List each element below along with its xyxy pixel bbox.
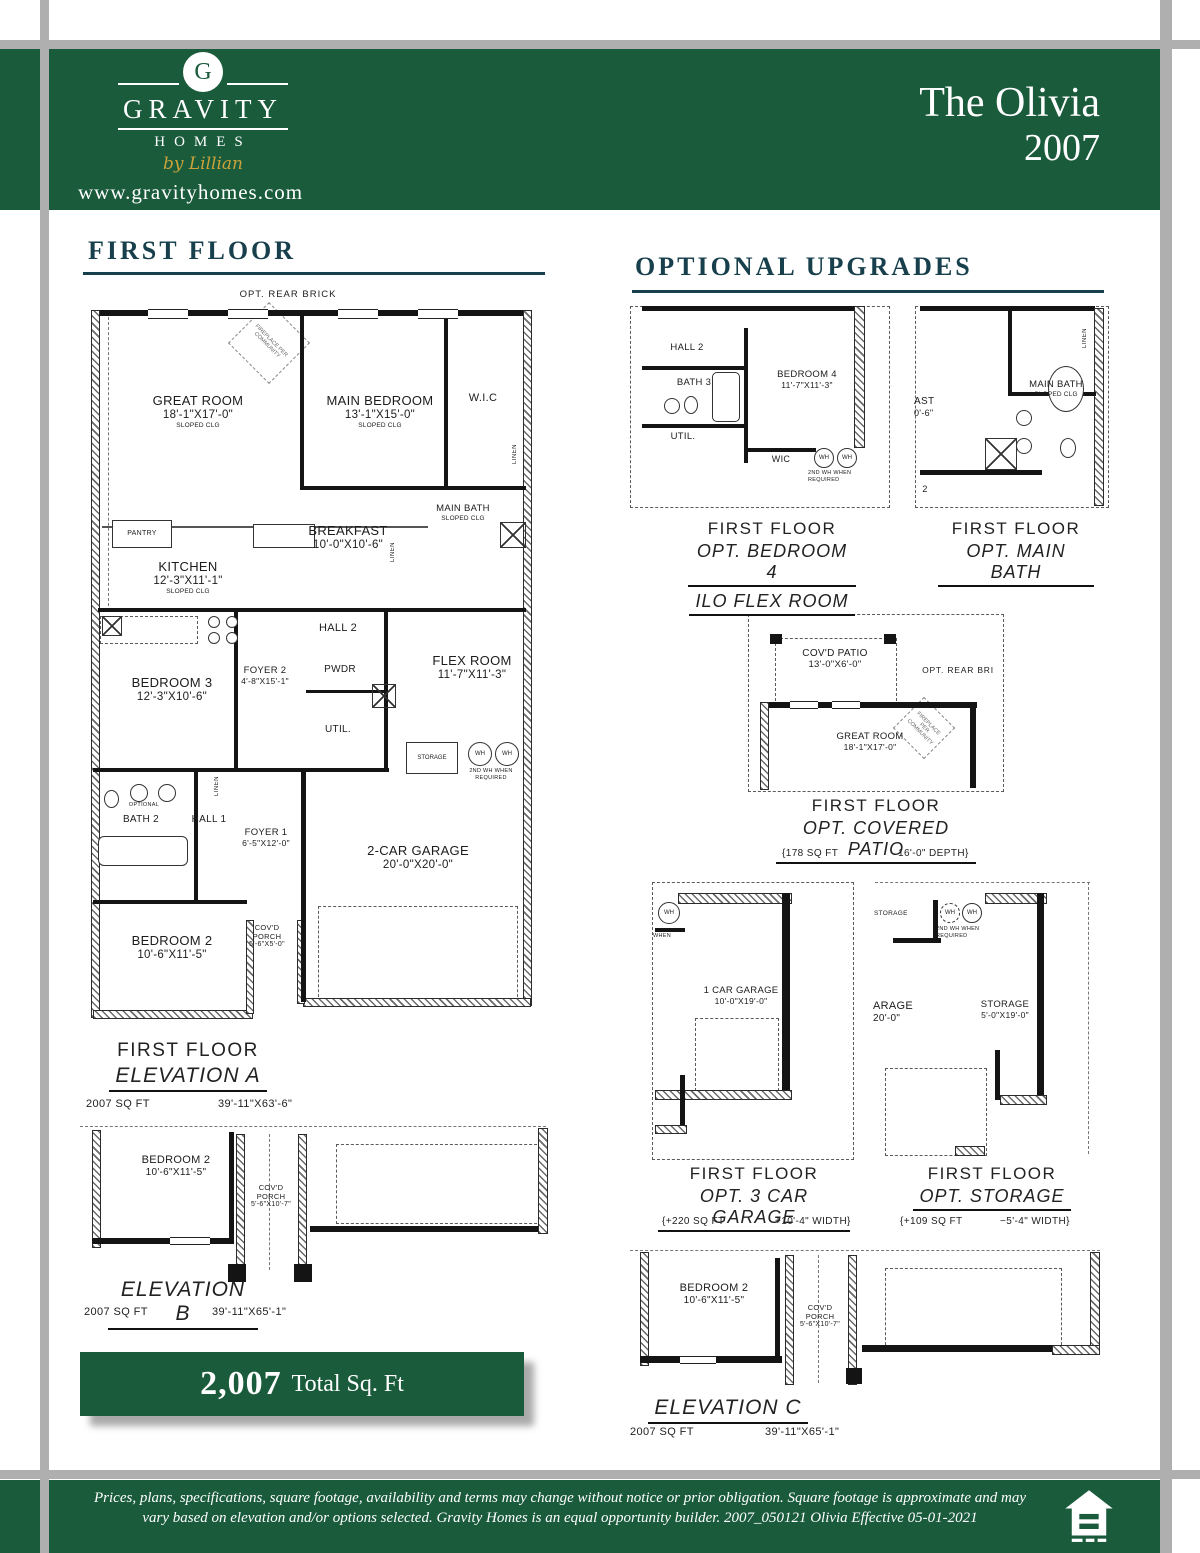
water-heater: WH bbox=[495, 742, 519, 766]
storage-box: STORAGE bbox=[406, 742, 458, 774]
sink bbox=[1016, 410, 1032, 426]
wall bbox=[303, 998, 531, 1007]
wall bbox=[98, 608, 526, 612]
plan-name: The Olivia bbox=[919, 80, 1100, 126]
room-label-pwdr: PWDR bbox=[312, 664, 368, 676]
room-label-foyer2: FOYER 2 4'-8"X15'-1" bbox=[230, 666, 300, 687]
wall bbox=[655, 928, 685, 932]
breakfast-cropped-label: AST 0'-6" bbox=[914, 396, 950, 418]
opt-bedroom4-caption: FIRST FLOOR OPT. BEDROOM 4 ILO FLEX ROOM bbox=[688, 519, 856, 616]
room-dims: 4'-8"X15'-1" bbox=[230, 677, 300, 687]
linen-label: LINEN bbox=[214, 776, 220, 796]
caption-line: OPT. BEDROOM 4 bbox=[688, 539, 856, 587]
water-heater: WH bbox=[468, 742, 492, 766]
room-dims: 11'-7"X11'-3" bbox=[760, 381, 854, 391]
room-name: KITCHEN bbox=[128, 560, 248, 575]
room-label-bath3: BATH 3 bbox=[664, 378, 724, 389]
dashed-line bbox=[1088, 882, 1089, 1154]
room-dims: 20'-0"X20'-0" bbox=[340, 859, 496, 872]
caption-line: FIRST FLOOR bbox=[88, 1040, 288, 1062]
storage-sqft: {+109 SQ FT bbox=[900, 1216, 963, 1227]
wall bbox=[642, 424, 748, 428]
water-heater: WH bbox=[837, 448, 857, 468]
elevation-b-sqft: 2007 SQ FT bbox=[84, 1306, 148, 1318]
wall bbox=[1000, 1095, 1047, 1105]
room-label-bedroom2: BEDROOM 2 10'-6"X11'-5" bbox=[116, 1154, 236, 1178]
wall bbox=[92, 1130, 101, 1248]
caption-line: FIRST FLOOR bbox=[776, 796, 976, 816]
window bbox=[338, 309, 378, 319]
wall bbox=[640, 1252, 649, 1366]
shelf-x bbox=[372, 684, 396, 708]
room-dims: 5'-6"X10'-7" bbox=[230, 1201, 312, 1209]
water-heater: WH bbox=[814, 448, 834, 468]
footer-disclaimer-line1: Prices, plans, specifications, square fo… bbox=[60, 1490, 1060, 1507]
logo-monogram-circle: G bbox=[183, 52, 223, 92]
wall bbox=[1094, 308, 1104, 506]
room-name: PORCH bbox=[230, 1193, 312, 1202]
brochure-page: G GRAVITY HOMES by Lillian www.gravityho… bbox=[0, 0, 1200, 1553]
room-label-porch: COV'D PORCH 5'-6"X10'-7" bbox=[788, 1304, 852, 1329]
room-label-main-bath: MAIN BATH SLOPED CLG bbox=[1026, 380, 1086, 398]
window bbox=[790, 701, 818, 709]
wall bbox=[678, 893, 792, 904]
total-sqft-value: 2,007 bbox=[200, 1365, 282, 1403]
caption-line: FIRST FLOOR bbox=[658, 1164, 850, 1184]
room-name: FLEX ROOM bbox=[416, 654, 528, 669]
room-name: BEDROOM 2 bbox=[116, 1154, 236, 1167]
sink bbox=[664, 398, 680, 414]
elevation-c-sqft: 2007 SQ FT bbox=[630, 1426, 694, 1438]
elevation-c-caption: ELEVATION C bbox=[648, 1394, 808, 1424]
first-floor-rule bbox=[83, 272, 545, 275]
linen-label: LINEN bbox=[390, 542, 396, 562]
wall bbox=[194, 770, 198, 902]
wall bbox=[301, 770, 306, 1002]
wh-when-note: WHEN bbox=[653, 933, 685, 940]
sink bbox=[158, 784, 176, 802]
wall bbox=[746, 448, 816, 452]
room-label-great-room: GREAT ROOM 18'-1"X17'-0" bbox=[800, 732, 940, 753]
total-sqft-label: Total Sq. Ft bbox=[292, 1371, 404, 1398]
room-label-main-bedroom: MAIN BEDROOM 13'-1"X15'-0" SLOPED CLG bbox=[310, 394, 450, 430]
room-name: AST bbox=[914, 396, 950, 408]
footer-disclaimer-line2: vary based on elevation and/or options s… bbox=[60, 1510, 1060, 1527]
room-note: SLOPED CLG bbox=[1026, 391, 1086, 398]
room-dims: 20'-0" bbox=[873, 1013, 931, 1025]
optional-upgrades-rule bbox=[632, 290, 1104, 293]
porch-post bbox=[846, 1368, 862, 1384]
optional-note: OPTIONAL bbox=[120, 802, 168, 809]
room-label-porch: COV'D PORCH 5'-6"X10'-7" bbox=[230, 1184, 312, 1209]
caption-line: OPT. MAIN BATH bbox=[938, 539, 1094, 587]
patio-post bbox=[770, 634, 782, 644]
stove-burner bbox=[226, 632, 238, 644]
room-label-great-room: GREAT ROOM 18'-1"X17'-0" SLOPED CLG bbox=[113, 394, 283, 430]
caption-line: ELEVATION A bbox=[109, 1062, 266, 1092]
room-label-hall2: HALL 2 bbox=[654, 343, 720, 354]
stove-burner bbox=[208, 632, 220, 644]
garage3-width: +10'-4" WIDTH} bbox=[775, 1216, 851, 1227]
elevation-a-caption: FIRST FLOOR ELEVATION A bbox=[88, 1040, 288, 1092]
toilet bbox=[684, 396, 698, 414]
tub bbox=[98, 836, 188, 866]
room-name: PORCH bbox=[236, 933, 298, 942]
garage-door-dashed bbox=[885, 1268, 1062, 1350]
gravity-homes-logo: G GRAVITY HOMES by Lillian bbox=[118, 52, 288, 174]
opt-storage-caption: FIRST FLOOR OPT. STORAGE bbox=[898, 1164, 1086, 1211]
caption-line: FIRST FLOOR bbox=[938, 519, 1094, 539]
wall bbox=[300, 310, 304, 488]
wall bbox=[995, 1050, 1000, 1100]
wall bbox=[760, 702, 769, 790]
garage-door-dashed bbox=[318, 906, 518, 1002]
logo-rule-right bbox=[227, 83, 288, 85]
room-dims: 10'-6"X11'-5" bbox=[116, 1167, 236, 1179]
logo-rule-left bbox=[118, 83, 179, 85]
room-dims: 12'-3"X11'-1" bbox=[128, 575, 248, 588]
room-dims: 5'-6"X5'-0" bbox=[236, 941, 298, 949]
room-dims: 5'-6"X10'-7" bbox=[788, 1321, 852, 1329]
room-note: SLOPED CLG bbox=[310, 422, 450, 429]
sink bbox=[1016, 438, 1032, 454]
room-label-bedroom3: BEDROOM 3 12'-3"X10'-6" bbox=[106, 676, 238, 704]
sink bbox=[130, 784, 148, 802]
room-dims: 10'-6"X11'-5" bbox=[655, 1295, 773, 1307]
garage-door-dashed bbox=[695, 1018, 779, 1096]
logo-homes: HOMES bbox=[118, 134, 288, 151]
opt-rear-brick-label: OPT. REAR BRICK bbox=[208, 290, 368, 301]
shelf-x bbox=[102, 616, 122, 636]
shower-x bbox=[985, 438, 1017, 470]
room-name: MAIN BATH bbox=[430, 504, 496, 515]
wall bbox=[920, 470, 1042, 475]
wh-note: 2ND WH WHEN REQUIRED bbox=[460, 768, 522, 781]
elevation-a-sqft: 2007 SQ FT bbox=[86, 1098, 150, 1110]
dashed-outline bbox=[885, 1068, 987, 1156]
elevation-b-dims: 39'-11"X65'-1" bbox=[212, 1306, 286, 1318]
optional-upgrades-heading: OPTIONAL UPGRADES bbox=[635, 252, 973, 282]
room-dims: 13'-1"X15'-0" bbox=[310, 409, 450, 422]
patio-depth: 16'-0" DEPTH} bbox=[898, 848, 969, 859]
room-name: PORCH bbox=[788, 1313, 852, 1322]
room-dims: 0'-6" bbox=[914, 408, 950, 418]
website-link[interactable]: www.gravityhomes.com bbox=[78, 180, 303, 205]
elevation-c-dims: 39'-11"X65'-1" bbox=[765, 1426, 839, 1438]
wall bbox=[680, 1075, 685, 1130]
caption-line: ELEVATION B bbox=[108, 1276, 258, 1330]
linen-label: LINEN bbox=[1082, 328, 1088, 348]
room-label-hall1: HALL 1 bbox=[178, 814, 240, 826]
window bbox=[170, 1237, 210, 1245]
room-label-porch: COV'D PORCH 5'-6"X5'-0" bbox=[236, 924, 298, 949]
room-label-bedroom2: BEDROOM 2 10'-6"X11'-5" bbox=[655, 1282, 773, 1306]
wall bbox=[92, 1238, 234, 1244]
elevation-a-dims: 39'-11"X63'-6" bbox=[218, 1098, 292, 1110]
wall bbox=[642, 306, 854, 311]
wall bbox=[642, 366, 746, 370]
room-label-util: UTIL. bbox=[656, 432, 710, 443]
hall-fragment: 2 bbox=[918, 484, 932, 494]
logo-wordmark: GRAVITY bbox=[118, 94, 288, 125]
room-label-foyer1: FOYER 1 6'-5"X12'-0" bbox=[226, 828, 306, 849]
caption-line: FIRST FLOOR bbox=[688, 519, 856, 539]
room-name: ARAGE bbox=[873, 1000, 931, 1013]
room-name: BEDROOM 2 bbox=[655, 1282, 773, 1295]
caption-line: FIRST FLOOR bbox=[898, 1164, 1086, 1184]
fireplace-note: FIREPLACE PER COMMUNITY bbox=[245, 319, 293, 367]
left-crop-bar bbox=[40, 0, 49, 1553]
room-name: BEDROOM 2 bbox=[104, 934, 240, 949]
room-label-hall2: HALL 2 bbox=[298, 622, 378, 635]
dashed-line bbox=[875, 882, 1090, 883]
wall bbox=[93, 1010, 253, 1019]
wall bbox=[93, 768, 389, 772]
wall bbox=[91, 310, 100, 1018]
toilet bbox=[104, 790, 119, 808]
caption-line: ILO FLEX ROOM bbox=[689, 589, 854, 616]
linen-label: LINEN bbox=[512, 444, 518, 464]
patio-post bbox=[884, 634, 896, 644]
elevation-b-plan: BEDROOM 2 10'-6"X11'-5" COV'D PORCH 5'-6… bbox=[80, 1118, 548, 1280]
wh-note: 2ND WH WHEN REQUIRED bbox=[808, 470, 866, 483]
room-dims: 18'-1"X17'-0" bbox=[800, 743, 940, 753]
room-name: MAIN BEDROOM bbox=[310, 394, 450, 409]
wall bbox=[744, 328, 748, 463]
room-label-storage: STORAGE 5'-0"X19'-0" bbox=[968, 1000, 1042, 1021]
window bbox=[832, 701, 860, 709]
main-floor-plan: FIREPLACE PER COMMUNITY WH WH 2ND WH WHE… bbox=[88, 298, 540, 1038]
caption-line: OPT. STORAGE bbox=[913, 1184, 1070, 1211]
equal-housing-icon bbox=[1062, 1487, 1116, 1543]
room-name: COV'D PATIO bbox=[780, 648, 890, 660]
window bbox=[148, 309, 188, 319]
room-dims: 12'-3"X10'-6" bbox=[106, 691, 238, 704]
wall bbox=[893, 938, 941, 943]
patio-sqft: {178 SQ FT bbox=[782, 848, 838, 859]
room-dims: 11'-7"X11'-3" bbox=[416, 669, 528, 682]
elevation-b-caption: ELEVATION B bbox=[108, 1276, 258, 1330]
wall bbox=[1008, 306, 1012, 394]
wall bbox=[955, 1146, 985, 1156]
porch-post bbox=[294, 1264, 312, 1282]
water-heater: WH bbox=[658, 902, 680, 924]
storage-box-label: STORAGE bbox=[874, 910, 914, 917]
logo-initial: G bbox=[194, 59, 211, 86]
shower-x bbox=[500, 522, 526, 548]
room-dims: 18'-1"X17'-0" bbox=[113, 409, 283, 422]
wall bbox=[310, 1226, 542, 1232]
room-name: BREAKFAST bbox=[280, 524, 416, 539]
room-label-bedroom2: BEDROOM 2 10'-6"X11'-5" bbox=[104, 934, 240, 962]
room-dims: 6'-5"X12'-0" bbox=[226, 839, 306, 849]
wall bbox=[970, 702, 976, 788]
room-label-util: UTIL. bbox=[310, 724, 366, 736]
opt-main-bath-caption: FIRST FLOOR OPT. MAIN BATH bbox=[938, 519, 1094, 587]
room-dims: 10'-6"X11'-5" bbox=[104, 949, 240, 962]
room-label-garage: 2-CAR GARAGE 20'-0"X20'-0" bbox=[340, 844, 496, 872]
room-label-1car-garage: 1 CAR GARAGE 10'-0"X19'-0" bbox=[685, 986, 797, 1007]
logo-tagline: by Lillian bbox=[118, 154, 288, 174]
wall bbox=[1052, 1345, 1100, 1355]
opt-rear-brick-label: OPT. REAR BRI bbox=[912, 666, 1004, 676]
bottom-crop-bar bbox=[0, 1470, 1200, 1479]
room-label-bath2: BATH 2 bbox=[110, 814, 172, 826]
water-heater: WH bbox=[940, 903, 960, 923]
room-name: 2-CAR GARAGE bbox=[340, 844, 496, 859]
top-crop-bar bbox=[0, 40, 1200, 49]
room-note: SLOPED CLG bbox=[128, 588, 248, 595]
room-note: SLOPED CLG bbox=[430, 515, 496, 522]
window bbox=[228, 309, 268, 319]
stove-burner bbox=[226, 616, 238, 628]
wall bbox=[1037, 893, 1044, 1100]
total-sqft-banner: 2,007 Total Sq. Ft bbox=[80, 1352, 524, 1416]
wall bbox=[300, 486, 526, 490]
room-name: BEDROOM 3 bbox=[106, 676, 238, 691]
window bbox=[418, 309, 458, 319]
caption-line: ELEVATION C bbox=[648, 1394, 807, 1424]
room-dims: 5'-0"X19'-0" bbox=[968, 1011, 1042, 1021]
room-name: MAIN BATH bbox=[1026, 380, 1086, 391]
room-note: SLOPED CLG bbox=[113, 422, 283, 429]
room-label-covd-patio: COV'D PATIO 13'-0"X6'-0" bbox=[780, 648, 890, 670]
window bbox=[680, 1356, 716, 1364]
room-label-wic: W.I.C bbox=[440, 392, 526, 405]
dashed-line bbox=[80, 1126, 546, 1127]
room-label-kitchen: KITCHEN 12'-3"X11'-1" SLOPED CLG bbox=[128, 560, 248, 596]
water-heater: WH bbox=[962, 903, 982, 923]
wall bbox=[655, 1090, 792, 1100]
wall bbox=[854, 306, 865, 448]
room-label-wic: WIC bbox=[752, 454, 810, 464]
room-name: GREAT ROOM bbox=[113, 394, 283, 409]
room-dims: 13'-0"X6'-0" bbox=[780, 660, 890, 671]
logo-rule-bottom bbox=[118, 128, 288, 130]
toilet bbox=[1060, 438, 1076, 458]
room-label-bedroom4: BEDROOM 4 11'-7"X11'-3" bbox=[760, 370, 854, 391]
wall bbox=[93, 900, 247, 904]
wall bbox=[1090, 1252, 1100, 1352]
garage-door-dashed bbox=[336, 1144, 542, 1224]
stove-burner bbox=[208, 616, 220, 628]
room-label-pantry: PANTRY bbox=[112, 520, 172, 548]
garage3-sqft: {+220 SQ FT bbox=[662, 1216, 725, 1227]
wall bbox=[538, 1128, 548, 1234]
storage-width: −5'-4" WIDTH} bbox=[1000, 1216, 1070, 1227]
right-crop-bar bbox=[1160, 0, 1172, 1553]
room-label-main-bath: MAIN BATH SLOPED CLG bbox=[430, 504, 496, 522]
room-label-flex-room: FLEX ROOM 11'-7"X11'-3" bbox=[416, 654, 528, 682]
garage-cropped-label: ARAGE 20'-0" bbox=[873, 1000, 931, 1024]
dashed-line bbox=[630, 1250, 1100, 1251]
wall bbox=[655, 1125, 687, 1134]
plan-title: The Olivia 2007 bbox=[919, 80, 1100, 172]
dashed-line bbox=[108, 312, 109, 606]
wh-note: 2ND WH WHEN REQUIRED bbox=[936, 926, 992, 939]
first-floor-heading: FIRST FLOOR bbox=[88, 236, 296, 266]
plan-year: 2007 bbox=[919, 126, 1100, 172]
wall bbox=[775, 1258, 780, 1358]
room-dims: 10'-0"X19'-0" bbox=[685, 997, 797, 1007]
